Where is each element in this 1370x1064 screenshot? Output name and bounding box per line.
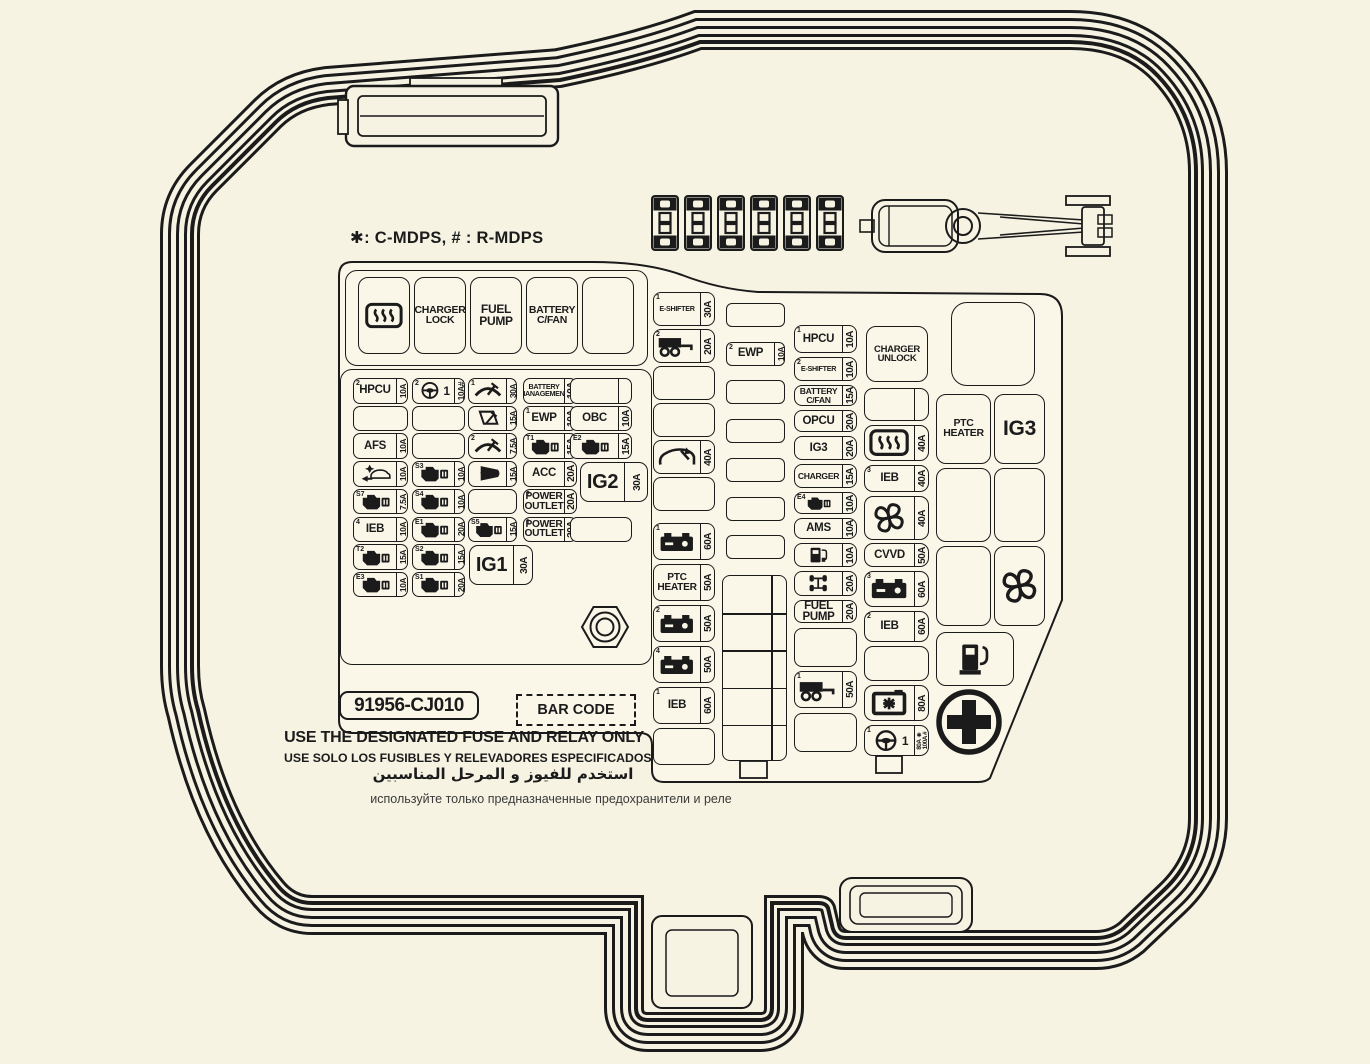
amp-label: 20A [846,440,856,457]
relay-box: FUELPUMP [470,277,522,354]
relay-box [582,277,634,354]
fuse-cell: 40A [864,496,929,540]
amp-label: 10A [399,384,408,398]
amp-strip: 15A [618,434,634,458]
amp-label: 20A [846,575,856,592]
amp-label: 10A [622,410,632,427]
fuse-code: 2 [471,435,475,442]
fuse-label-suffix: 1 [443,385,450,397]
amp-label: 10A [846,361,856,378]
fuse-code: 2 [656,331,660,338]
fuse-cell [726,419,785,443]
fuse-cell: IG230A [580,462,648,502]
liftgate-icon [654,441,700,473]
amp-strip: 50A [700,606,717,641]
amp-strip: 60A [700,688,717,723]
fuse-label: IG3 [810,443,828,454]
relay-label: BATTERYC/FAN [529,306,575,326]
fuse-label: BATTERYC/FAN [800,387,838,403]
fuse-code: 2 [797,359,801,366]
amp-label: 15A [457,550,466,564]
relay-label: CHARGERLOCK [415,306,466,326]
amp-label: 40A [918,435,928,452]
fuse-code: 3 [867,573,871,580]
fuel-station-box [936,632,1014,686]
amp-label: 40A [704,449,714,466]
amp-strip: 10A [396,434,410,458]
fuse-cell: 2HPCU10A [353,378,408,404]
fuse-cell [726,303,785,327]
relay-box [358,277,410,354]
amp-label: 10A [457,467,466,481]
fuse-label: CVVD [874,550,905,561]
amp-label: 10A [846,547,856,564]
amp-label: 50A [846,681,856,698]
barcode-box: BAR CODE [516,694,636,726]
fuse-code: 3 [867,467,871,474]
defrost-icon [362,295,406,336]
relay-box-charger-unlock: CHARGERUNLOCK [866,326,928,382]
fuse-cell: 160A [653,523,715,560]
amp-strip: 10A [774,343,787,365]
fuse-code: 2 [526,491,530,498]
amp-label: 20A [846,413,856,430]
amp-label: 60A [704,697,714,714]
amp-label: 50A [704,615,714,632]
relay-label: FUELPUMP [479,304,512,327]
relay-box [994,468,1045,542]
amp-strip: 10A# [454,379,467,403]
amp-strip: 15A [506,518,519,542]
fuse-cell: 360A [864,571,929,607]
fuse-label: BATTERYMANAGEMENT [524,384,564,398]
fuse-code: 2 [356,380,360,387]
amp-strip: 20A [700,330,717,362]
amp-label: 15A [509,467,518,481]
steering-wheel-icon [870,726,900,755]
fuse-cell: 40A [653,440,715,474]
fuse-code: E1 [415,519,424,526]
relay-box-large [951,302,1035,386]
amp-strip: 10A [618,407,634,431]
amp-label: 20A [567,493,577,510]
amp-label: 20A [567,465,577,482]
amp-strip: 10A [842,544,859,566]
amp-strip: 15A [842,386,859,405]
amp-strip: 10A [842,519,859,538]
amp-strip [618,379,634,403]
fuse-cell: 40A [864,425,929,461]
fuse-label: E-SHIFTER [801,366,836,373]
legend: ✱: C-MDPS, # : R-MDPS [350,228,543,248]
fuse-cell: 27.5A [468,433,517,459]
amp-label: 15A [509,411,518,425]
fuse-label: HPCU [359,385,390,396]
fuse-code: 1 [656,689,660,696]
fuse-code: 2 [867,613,871,620]
fuse-cell: 2E-SHIFTER10A [794,357,857,381]
relay-box [936,468,991,542]
fuse-cell [653,366,715,400]
battery-icon [654,524,700,559]
amp-label: 10A [457,495,466,509]
amp-strip: 15A [396,545,410,569]
fuse-label: PTCHEATER [657,573,696,592]
fuse-cell: 1HPCU10A [794,325,857,353]
amp-label: 10A [846,495,856,512]
fuse-cell: 15A [468,406,517,432]
amp-strip: 20A [842,437,859,459]
fuse-cell: S410A [412,489,465,515]
fuse-cell [794,628,857,667]
rear-wiper-icon [469,407,506,431]
fuse-code: 2 [729,344,733,351]
fuse-label: AFS [364,441,386,452]
notice-english: USE THE DESIGNATED FUSE AND RELAY ONLY [284,729,644,747]
amp-strip: 50A [842,672,859,707]
fuse-code: 1 [867,727,871,734]
horn-icon [469,462,506,486]
fuse-label: ACC [532,468,556,479]
fuse-cell: PTCHEATER50A [653,564,715,601]
amp-label: 40A [918,510,928,527]
fuse-box-cover: ✱: C-MDPS, # : R-MDPS 91956-CJ010 BAR CO… [0,0,1370,1064]
amp-label: 7.5A [399,494,408,510]
fuse-cell: S515A [468,517,517,543]
fuse-code: 2 [415,380,419,387]
relay-box [994,546,1045,626]
fuse-cell: CHARGER15A [794,464,857,488]
trailer-icon [795,672,842,707]
fuse-cell: IG320A [794,436,857,460]
amp-label: 80A [918,695,928,712]
fuse-code: 2 [656,607,660,614]
fuse-cell: 2IEB60A [864,611,929,642]
fuse-cell: CVVD50A [864,543,929,567]
amp-strip: 10A [396,462,410,486]
relay-box: PTCHEATER [936,394,991,464]
fuse-cell: FUELPUMP20A [794,600,857,623]
amp-label: 20A [457,522,466,536]
amp-strip: 20A [564,462,579,486]
fuse-cell: BATTERYMANAGEMENT10A [523,378,577,404]
amp-label: 30A [509,384,518,398]
fuse-cell: 130A [468,378,517,404]
fuse-cell: 3IEB40A [864,465,929,492]
fuse-cell [653,728,715,765]
fuse-code: 1 [656,294,660,301]
fuse-label: IG2 [587,473,618,492]
fuse-label: EWP [531,413,556,424]
amp-label: 20A [846,603,856,620]
table-line [723,650,786,652]
amp-label: 10A# [457,382,466,400]
table-line [723,613,786,615]
amp-strip: 30A [513,546,535,584]
relay-box: CHARGERLOCK [414,277,466,354]
fuse-cell: 450A [653,646,715,683]
battery-star-icon [865,686,914,720]
amp-strip: 40A [914,426,931,460]
fuse-cell: IG130A [469,545,533,585]
relay-box: BATTERYC/FAN [526,277,578,354]
fuse-cell: 4IEB10A [353,517,408,543]
amp-strip: 40A [700,441,717,473]
fuse-code: S5 [471,519,480,526]
fuse-label: IEB [880,621,898,632]
fuse-cell [653,477,715,511]
aeb-icon [354,462,396,486]
fuse-cell: ACC20A [523,461,577,487]
fuse-cell [353,406,408,432]
amp-label: 20A [457,578,466,592]
fuse-cell: T215A [353,544,408,570]
fuse-cell: S310A [412,461,465,487]
amp-label: 10A [777,347,786,361]
amp-label: 15A [846,387,856,404]
notice-arabic: استخدم للفيوز و المرحل المناسبين [362,765,644,783]
relay-label: CHARGERUNLOCK [874,345,920,363]
amp-strip: 30A [506,379,519,403]
amp-label: 20A [704,338,714,355]
amp-strip: 40A [914,497,931,539]
amp-strip: 15A [506,407,519,431]
fuse-cell: 150A [794,671,857,708]
amp-strip: 30A [624,463,650,501]
amp-strip: 80A [914,686,931,720]
amp-label: 60A [918,581,928,598]
amp-label: 10A [846,331,856,348]
amp-strip: 60A [914,572,931,606]
fuse-code: 1 [797,673,801,680]
fuse-cell: 1EWP10A [523,406,577,432]
awd-icon [795,572,842,595]
fuse-cell [412,433,465,459]
amp-label: 15A [846,468,856,485]
amp-strip: 10A [454,462,467,486]
amp-label: 50A [918,547,928,564]
fuse-cell: S120A [412,572,465,598]
fuse-cell: OPCU20A [794,410,857,432]
defrost-icon [865,426,914,460]
fuse-cell: 2POWEROUTLET20A [523,489,577,515]
fuse-cell [570,378,632,404]
fuse-code: 1 [526,519,530,526]
fuse-code: E4 [797,494,806,501]
fuse-label: IG1 [476,556,507,575]
fuelpump-icon [952,637,998,681]
amp-strip: 10A [396,379,410,403]
fuse-cell [794,713,857,752]
amp-label: 10A [399,439,408,453]
amp-label: 50A [704,574,714,591]
fuse-cell: E410A [794,492,857,514]
amp-strip: 15A [506,462,519,486]
amp-label: 50A [704,656,714,673]
fuse-cell: AMS10A [794,518,857,539]
amp-label: 10A [399,522,408,536]
amp-strip: 10A [842,326,859,352]
fuse-cell [864,388,929,421]
amp-label: 15A [509,522,518,536]
fuse-cell: OBC10A [570,406,632,432]
fuse-cell [864,646,929,681]
fuse-label: E-SHIFTER [659,306,694,313]
fuse-cell: E215A [570,433,632,459]
amp-label: 30A [520,557,530,574]
notice-spanish: USE SOLO LOS FUSIBLES Y RELEVADORES ESPE… [284,751,644,765]
fuse-cell: 1IEB60A [653,687,715,724]
fuse-cell: S215A [412,544,465,570]
amp-label: 10A [399,467,408,481]
amp-strip: 10A [842,493,859,513]
amp-strip: 30A [700,293,717,325]
fuse-label: OPCU [802,416,834,427]
amp-strip: 15A [454,545,467,569]
fuse-cell: 1E-SHIFTER30A [653,292,715,326]
amp-strip: 10A [454,490,467,514]
part-number: 91956-CJ010 [339,691,479,720]
amp-strip: 7.5A [506,434,519,458]
fuse-label: HPCU [803,334,834,345]
amp-label: 30A [704,301,714,318]
amp-strip: 20A [842,601,859,622]
fuse-cell: 10A [794,543,857,567]
fuse-cell: 250A [653,605,715,642]
fuse-code: 1 [797,327,801,334]
fuse-label: IEB [668,700,686,711]
amp-label: 30A [633,474,643,491]
fuse-code: S1 [415,574,424,581]
amp-strip: 80A ✱100A # [914,726,931,755]
fuse-label: IEB [880,473,898,484]
fuse-cell: 15A [468,461,517,487]
fuse-label: EWP [738,348,763,359]
amp-strip: 50A [700,565,717,600]
relay-label: IG3 [1003,419,1036,439]
amp-strip: 20A [842,572,859,595]
fuse-code: E3 [356,574,365,581]
fuse-code: 4 [356,519,360,526]
fuse-cell: 1POWEROUTLET20A [523,517,577,543]
fuse-label: CHARGER [798,472,839,480]
fuse-code: S2 [415,546,424,553]
fuse-label: AMS [806,523,831,534]
amp-strip: 50A [700,647,717,682]
fuse-cell: 2110A# [412,378,465,404]
ev-charger-icon [795,544,842,566]
fuse-cell: AFS10A [353,433,408,459]
fuse-label: POWEROUTLET [525,492,564,511]
fuse-cell: S77.5A [353,489,408,515]
amp-strip: 7.5A [396,490,410,514]
amp-strip [914,389,931,420]
fuse-cell: 20A [794,571,857,596]
fuse-cell: 10A [353,461,408,487]
fan-icon [997,559,1042,614]
fuse-label: OBC [582,413,607,424]
fuse-cell [570,517,632,543]
fuse-cell: E120A [412,517,465,543]
fuse-code: 1 [471,380,475,387]
fuse-cell: 220A [653,329,715,363]
table-line [771,576,773,760]
amp-strip: 50A [914,544,931,566]
fuse-cell: 1180A ✱100A # [864,725,929,756]
trailer-icon [654,330,700,362]
fuse-code: S7 [356,491,365,498]
fuse-code: 4 [656,648,660,655]
fuse-code: T1 [526,435,534,442]
notice-russian: используйте только предназначенные предо… [345,792,757,806]
amp-strip: 15A [842,465,859,487]
fuse-cell [726,380,785,404]
fuse-cell [726,458,785,482]
amp-label: 60A [704,533,714,550]
fuse-code: E2 [573,435,582,442]
amp-strip: 10A [396,573,410,597]
amp-label: 100A # [923,732,929,749]
amp-label: 10A [846,520,856,537]
fuse-label-suffix: 1 [902,735,909,747]
fuse-cell [726,497,785,521]
relay-label: PTCHEATER [943,419,984,439]
amp-label: 15A [622,438,632,455]
table-line [723,688,786,690]
fuse-cell: 80A [864,685,929,721]
amp-strip: 20A [842,411,859,431]
battery-icon [654,606,700,641]
steering-wheel-icon [417,379,442,403]
fuse-cell [726,535,785,559]
fuse-code: 1 [656,525,660,532]
fan-icon [865,497,914,539]
amp-label: 7.5A [509,438,518,454]
fuse-cell [412,406,465,432]
amp-strip: 60A [700,524,717,559]
fuse-cell: T115A [523,433,577,459]
amp-strip: 10A [842,358,859,380]
amp-label: 40A [918,470,928,487]
fuse-cell [468,489,517,515]
amp-strip: 20A [454,518,467,542]
amp-label: 10A [399,578,408,592]
fuse-cell [653,403,715,437]
fuse-cell: 2EWP10A [726,342,785,366]
table-line [723,725,786,727]
fuse-code: S4 [415,491,424,498]
battery-icon [654,647,700,682]
battery-icon [865,572,914,606]
amp-label: 15A [399,550,408,564]
amp-strip: 60A [914,612,931,641]
fuse-code: 1 [526,408,530,415]
fuse-label: POWEROUTLET [525,520,564,539]
fuse-label: FUELPUMP [802,601,834,622]
fuse-panel: ✱: C-MDPS, # : R-MDPS 91956-CJ010 BAR CO… [0,0,1370,1064]
fuse-cell: BATTERYC/FAN15A [794,385,857,406]
relay-box: IG3 [994,394,1045,464]
relay-box [936,546,991,626]
amp-strip: 20A [454,573,467,597]
amp-strip: 20A [564,490,579,514]
amp-label: 60A [918,618,928,635]
amp-strip: 40A [914,466,931,491]
fuse-label: IEB [366,524,384,535]
fuse-code: S3 [415,463,424,470]
fuse-code: T2 [356,546,364,553]
empty-fuse-table [722,575,787,761]
